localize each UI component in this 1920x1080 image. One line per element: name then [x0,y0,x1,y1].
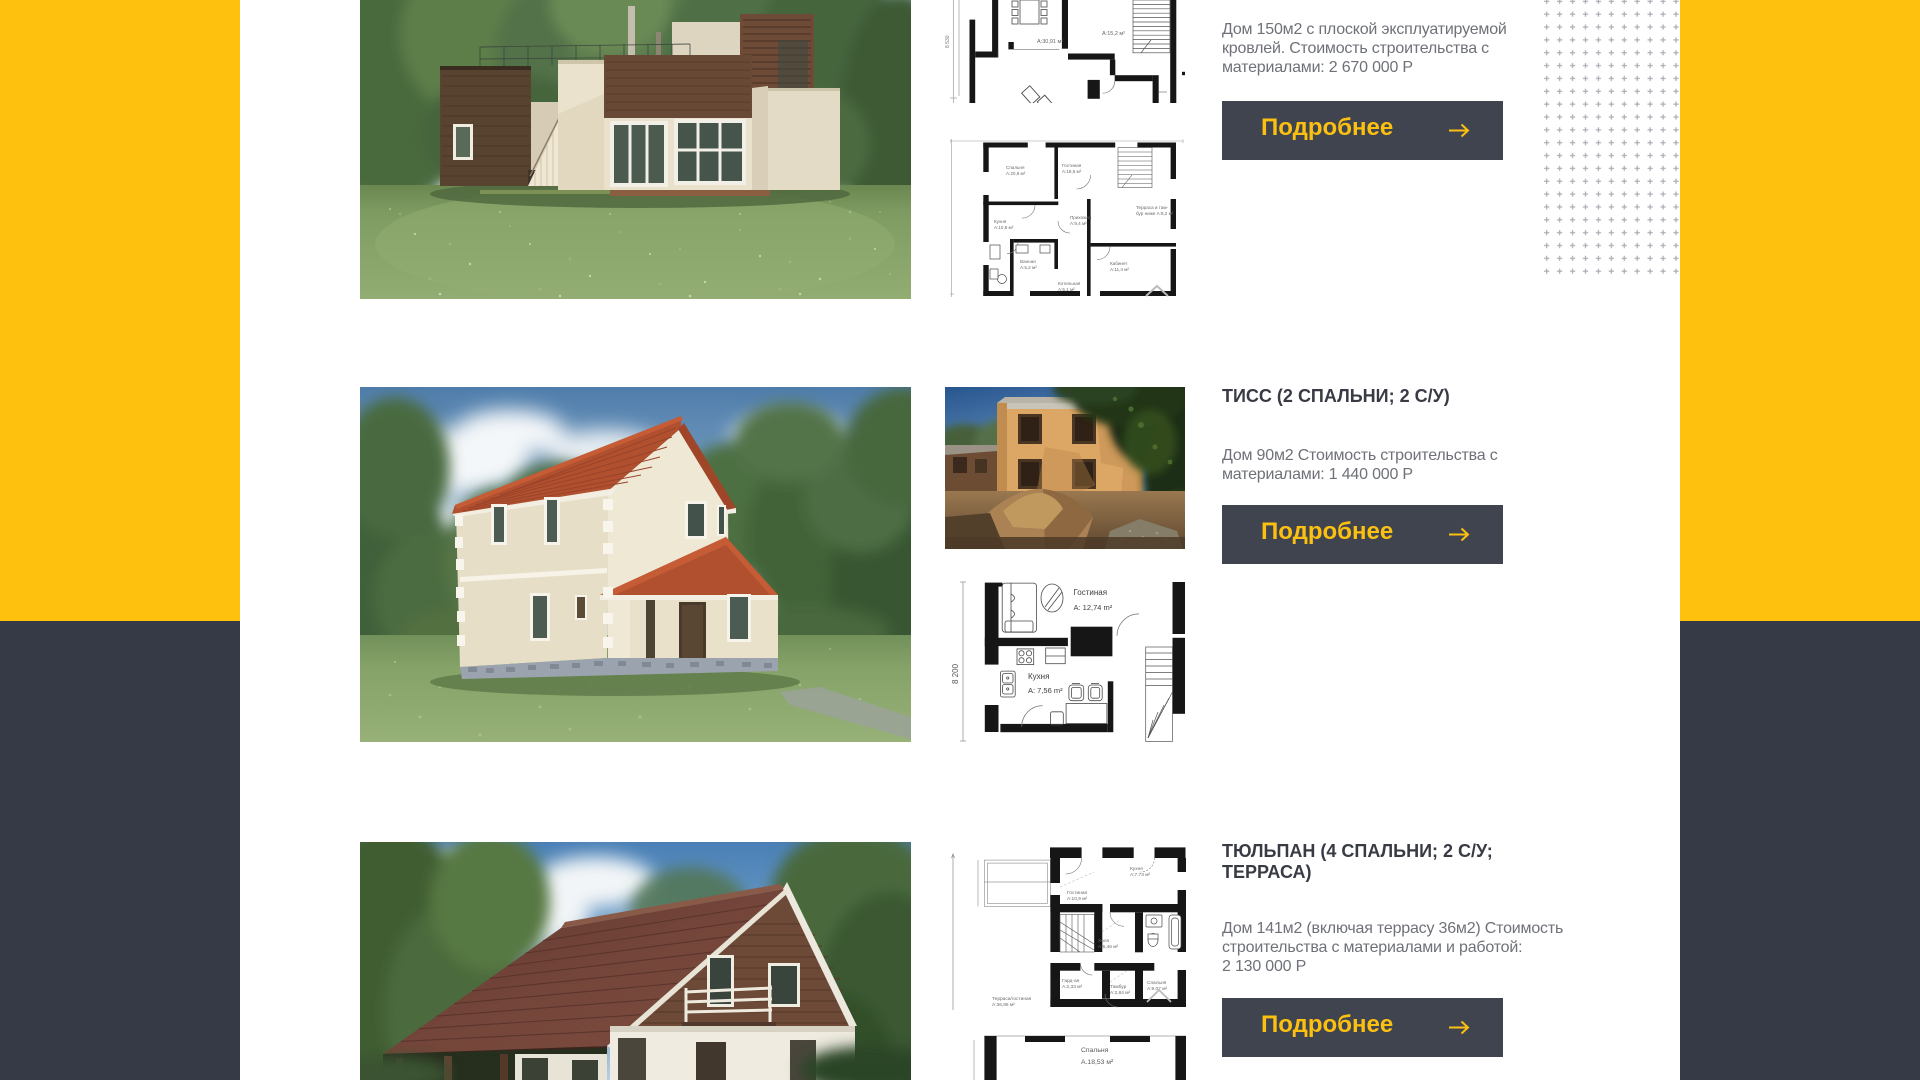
svg-text:Кухня: Кухня [994,219,1007,224]
svg-text:8 530: 8 530 [945,35,951,48]
svg-text:А:2,84 м²: А:2,84 м² [1110,990,1130,996]
svg-text:Кабинет: Кабинет [1110,261,1128,266]
svg-text:А: 7,56 m²: А: 7,56 m² [1028,686,1063,695]
svg-text:бур ниже А:8,2 м²: бур ниже А:8,2 м² [1136,211,1174,216]
svg-text:Терраса/гостиная: Терраса/гостиная [992,996,1032,1002]
svg-text:А:5,46 м²: А:5,46 м² [1098,944,1118,950]
svg-text:А:18,6 м²: А:18,6 м² [1062,169,1082,174]
svg-text:Гостиная: Гостиная [1062,163,1082,168]
svg-text:Ванная: Ванная [1020,259,1036,264]
svg-text:Кухня: Кухня [1028,672,1049,681]
svg-text:А:30,91 м²: А:30,91 м² [1037,39,1063,45]
svg-text:А:36,86 м²: А:36,86 м² [992,1002,1015,1008]
svg-text:Терраса и там-: Терраса и там- [1136,205,1169,210]
svg-text:Холл: Холл [1098,938,1110,944]
svg-text:А:20,9 м²: А:20,9 м² [1006,171,1026,176]
svg-text:А:10,8 м²: А:10,8 м² [994,225,1014,230]
svg-text:А:10,9 м²: А:10,9 м² [1067,896,1087,902]
svg-text:Гостиная: Гостиная [1067,890,1088,896]
svg-text:А:7,73 м²: А:7,73 м² [1130,872,1150,878]
svg-text:Кухня: Кухня [1130,866,1143,872]
svg-text:А:15,2 м²: А:15,2 м² [1102,31,1125,37]
svg-text:Прихожая: Прихожая [1070,215,1092,220]
svg-text:Гард-ая: Гард-ая [1062,978,1080,984]
svg-text:А:11,4 м²: А:11,4 м² [1110,267,1129,272]
svg-text:Спальня: Спальня [1147,980,1167,986]
svg-text:А:5,1 м²: А:5,1 м² [1058,287,1075,292]
svg-text:Котельная: Котельная [1058,281,1081,286]
svg-text:8 200: 8 200 [951,663,960,684]
svg-text:Гостиная: Гостиная [1074,588,1108,597]
svg-text:Спальня: Спальня [1081,1047,1109,1054]
svg-text:Спальня: Спальня [1006,165,1025,170]
svg-text:А:9,4 м²: А:9,4 м² [1070,221,1087,226]
svg-text:А: 12,74 m²: А: 12,74 m² [1074,603,1113,612]
svg-text:А:2,33 м²: А:2,33 м² [1062,984,1082,990]
svg-text:5401: 5401 [950,942,952,954]
svg-text:А.18,53 м²: А.18,53 м² [1081,1059,1114,1066]
svg-text:Тамбур: Тамбур [1110,984,1127,990]
svg-text:А:5,2 м²: А:5,2 м² [1020,265,1037,270]
